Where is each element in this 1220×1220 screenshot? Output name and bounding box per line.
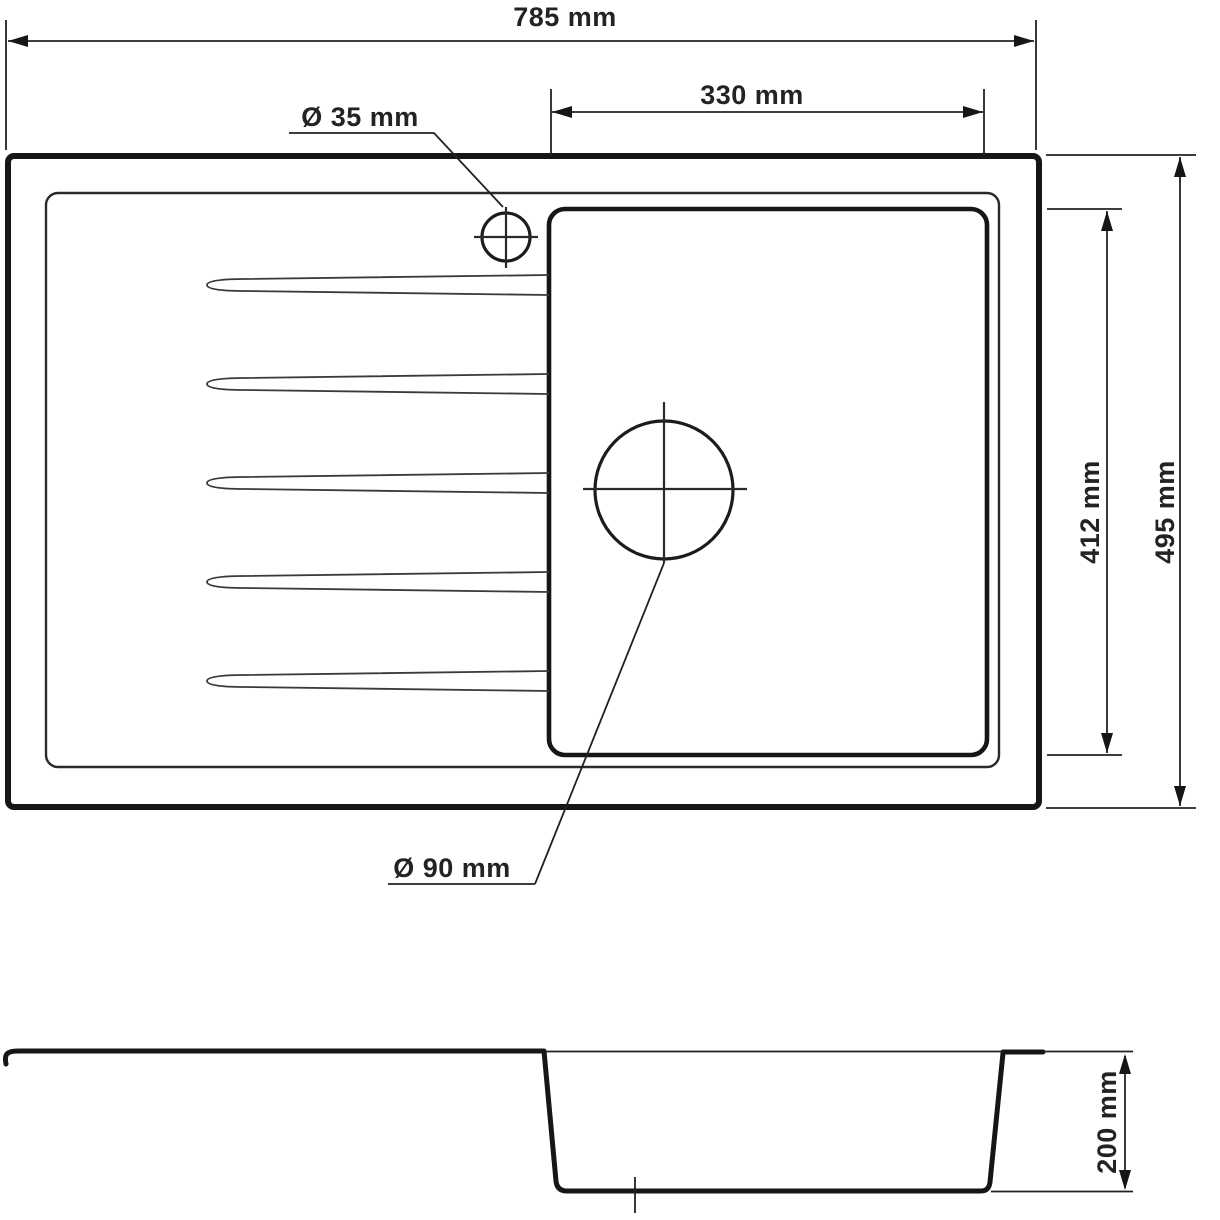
overall-width-label: 785 mm	[513, 2, 617, 32]
dim-overall-width: 785 mm	[6, 2, 1036, 150]
dim-overall-depth: 495 mm	[1046, 155, 1196, 808]
drainboard-border	[46, 193, 999, 767]
tap-hole	[474, 207, 538, 268]
dim-bowl-length: 412 mm	[1047, 209, 1122, 755]
arrowhead-bottom	[1174, 786, 1186, 806]
arrowhead-left	[8, 35, 28, 47]
tap-hole-diameter-label: Ø 35 mm	[301, 102, 419, 132]
bowl-length-label: 412 mm	[1075, 460, 1105, 564]
arrowhead-bottom	[1101, 733, 1113, 753]
drainer-groove	[207, 275, 549, 295]
sink-technical-drawing: Ø 35 mm Ø 90 mm 785 mm	[0, 0, 1220, 1220]
bowl-width-label: 330 mm	[700, 80, 804, 110]
drainer-grooves	[207, 275, 549, 691]
bowl-outline	[549, 209, 987, 755]
section-view: 200 mm	[5, 1051, 1133, 1213]
drain-callout: Ø 90 mm	[388, 563, 664, 884]
arrowhead-top	[1174, 157, 1186, 177]
arrowhead-left	[552, 106, 572, 118]
drain-hole	[583, 402, 747, 563]
drainer-groove	[207, 374, 549, 394]
tap-hole-leader-line	[289, 133, 503, 207]
overall-depth-label: 495 mm	[1150, 460, 1180, 564]
arrowhead-top	[1101, 211, 1113, 231]
bowl-depth-label: 200 mm	[1092, 1070, 1122, 1174]
drainer-groove	[207, 671, 549, 691]
arrowhead-right	[1014, 35, 1034, 47]
arrowhead-right	[963, 106, 983, 118]
dim-bowl-width: 330 mm	[551, 80, 984, 156]
drainer-groove	[207, 572, 549, 592]
drainer-groove	[207, 473, 549, 493]
drain-diameter-label: Ø 90 mm	[393, 853, 511, 883]
top-view: Ø 35 mm Ø 90 mm 785 mm	[6, 2, 1196, 884]
section-profile	[5, 1051, 1043, 1191]
dim-bowl-depth: 200 mm	[1092, 1054, 1131, 1190]
drain-leader-line	[535, 563, 664, 884]
